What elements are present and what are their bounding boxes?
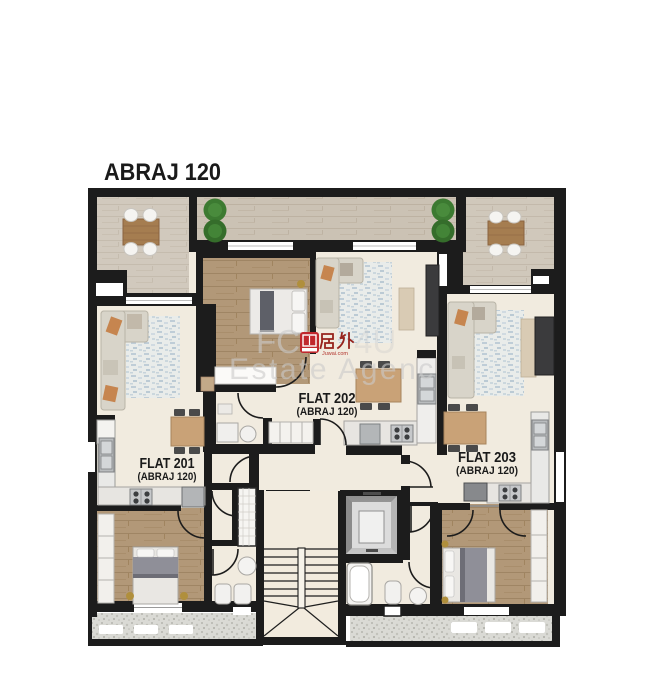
svg-text:(ABRAJ 120): (ABRAJ 120) — [138, 471, 197, 483]
svg-text:ABRAJ 120: ABRAJ 120 — [104, 159, 221, 186]
svg-text:FLAT 201: FLAT 201 — [140, 456, 195, 472]
svg-text:(ABRAJ 120): (ABRAJ 120) — [456, 465, 518, 477]
svg-text:FLAT 202: FLAT 202 — [299, 391, 356, 407]
svg-text:Juwai.com: Juwai.com — [322, 351, 348, 357]
svg-text:FLAT 203: FLAT 203 — [458, 450, 516, 466]
svg-text:(ABRAJ 120): (ABRAJ 120) — [297, 406, 358, 418]
svg-text:Estate Agenc: Estate Agenc — [229, 353, 436, 386]
